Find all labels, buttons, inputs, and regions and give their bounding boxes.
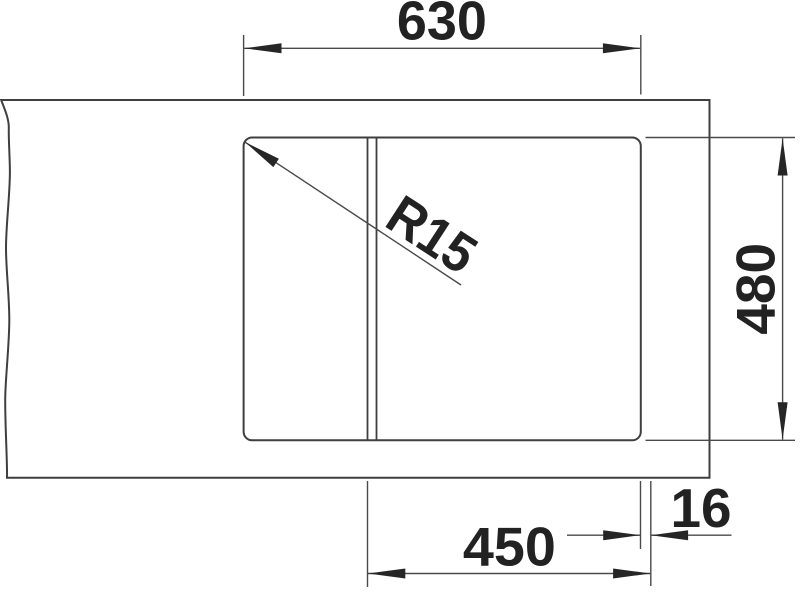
svg-text:480: 480 (725, 243, 787, 335)
svg-text:16: 16 (671, 477, 732, 539)
svg-text:630: 630 (397, 0, 487, 51)
svg-text:450: 450 (463, 515, 556, 577)
